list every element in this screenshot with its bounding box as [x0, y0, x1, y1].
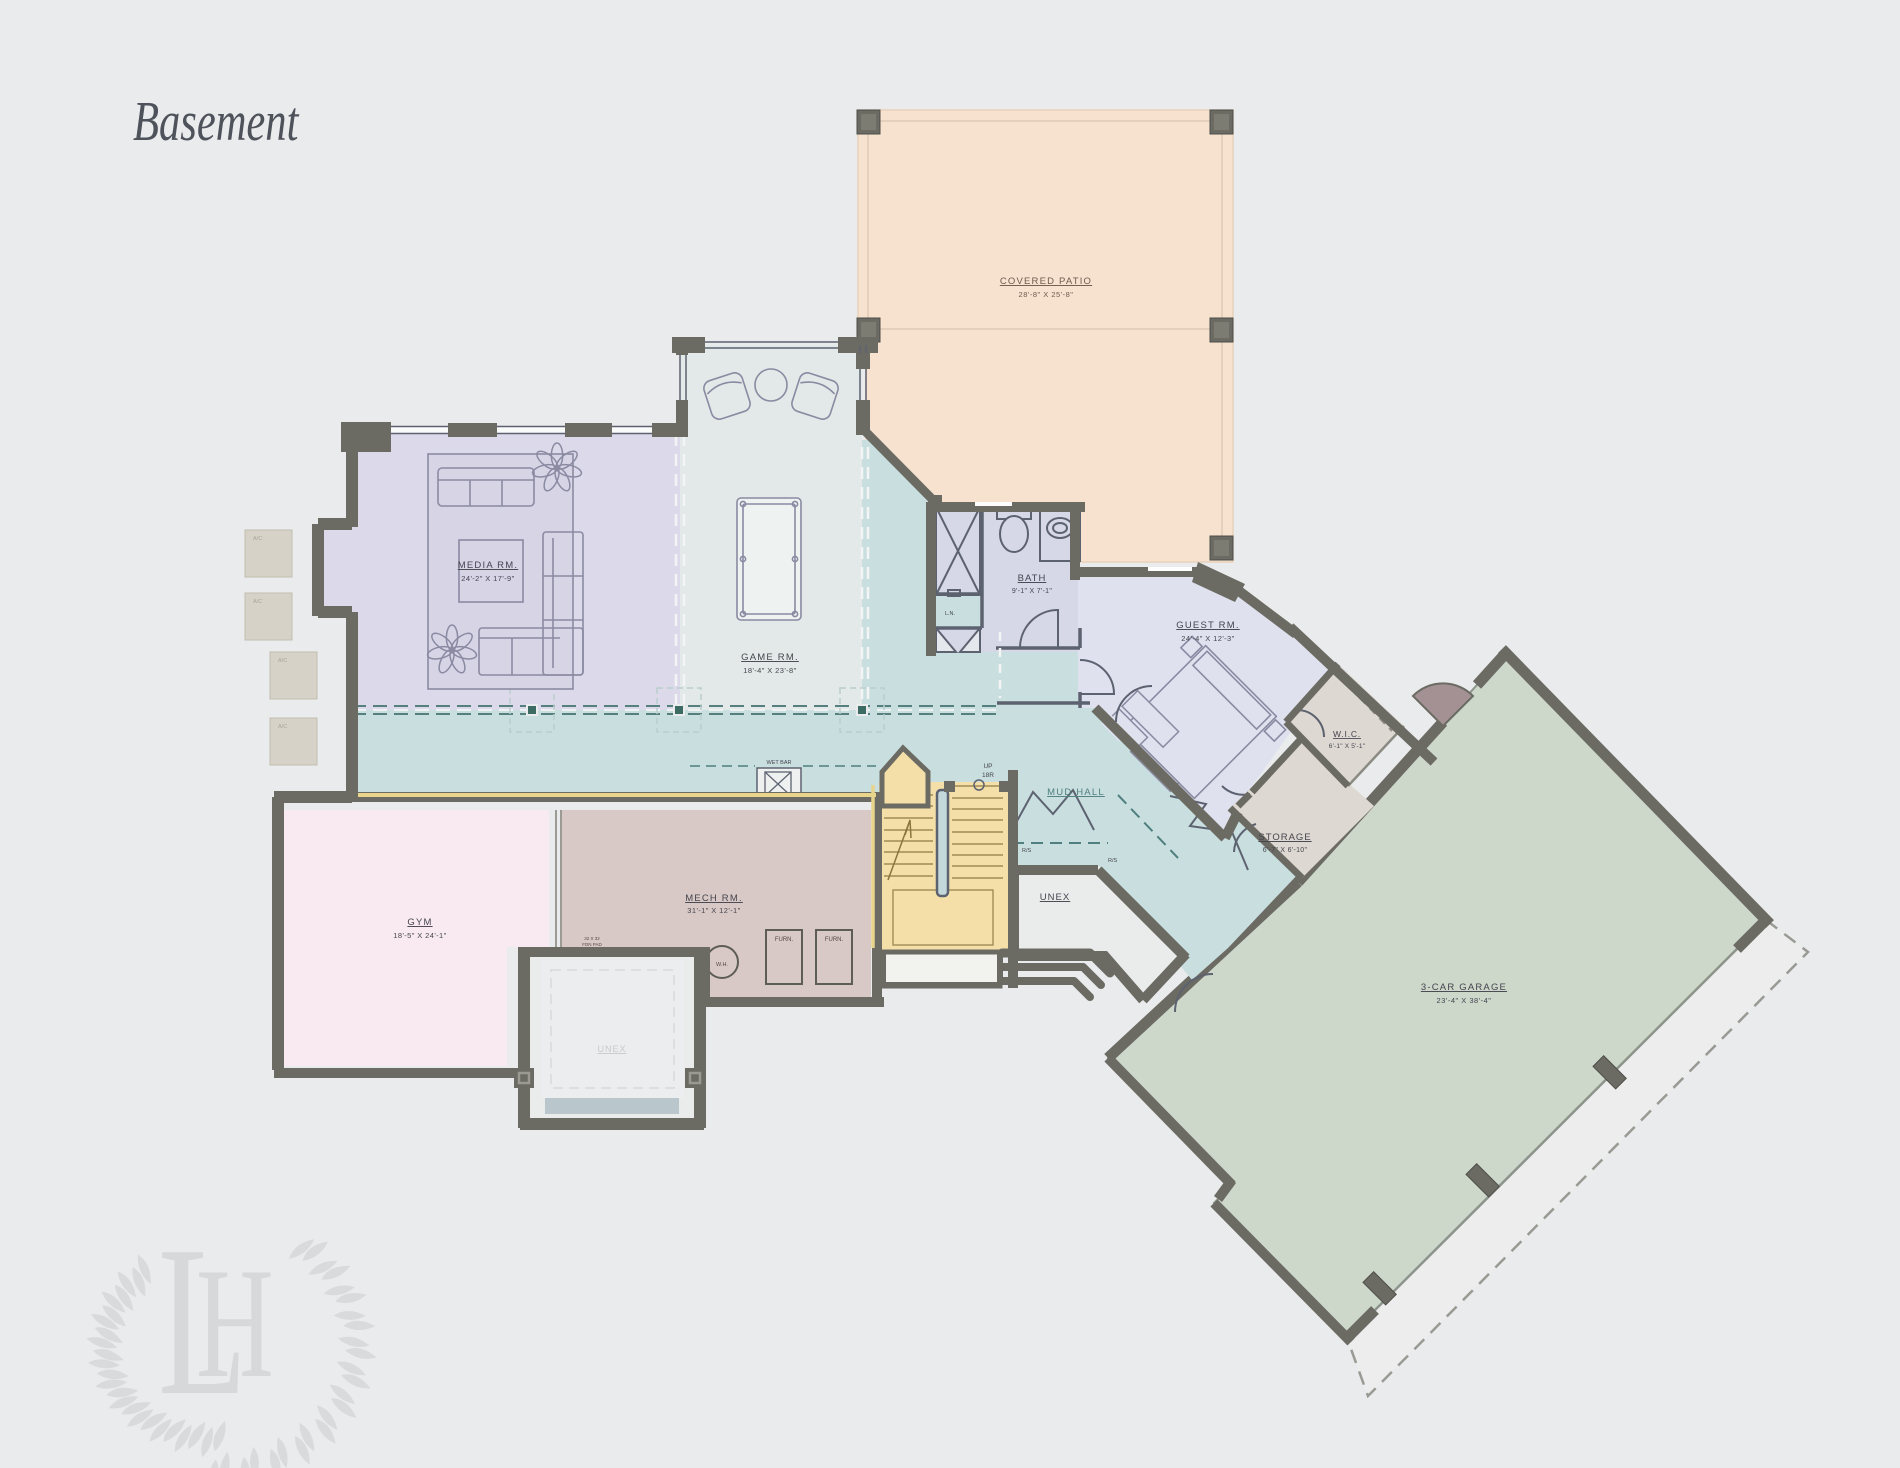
svg-text:18'-4" X 23'-8": 18'-4" X 23'-8" — [743, 666, 796, 675]
svg-text:Basement: Basement — [133, 90, 299, 152]
svg-text:28'-8" X 25'-8": 28'-8" X 25'-8" — [1019, 290, 1074, 299]
svg-text:R/S: R/S — [1108, 858, 1118, 864]
svg-text:WET BAR: WET BAR — [767, 760, 792, 766]
svg-text:W.H.: W.H. — [716, 962, 728, 968]
svg-text:24'-4" X 12'-3": 24'-4" X 12'-3" — [1181, 634, 1234, 643]
svg-text:3-CAR GARAGE: 3-CAR GARAGE — [1421, 982, 1507, 993]
svg-text:W.I.C.: W.I.C. — [1333, 729, 1361, 739]
svg-text:FDN PAD: FDN PAD — [582, 942, 602, 947]
svg-text:6'-7" X 6'-10": 6'-7" X 6'-10" — [1263, 847, 1308, 854]
svg-text:UNEX: UNEX — [1040, 892, 1070, 903]
svg-text:A/C: A/C — [253, 536, 262, 542]
svg-text:FURN.: FURN. — [825, 937, 844, 943]
svg-text:GYM: GYM — [407, 917, 432, 928]
svg-text:24'-2" X 17'-9": 24'-2" X 17'-9" — [461, 574, 514, 583]
svg-text:A/C: A/C — [278, 658, 287, 664]
svg-text:GUEST RM.: GUEST RM. — [1176, 620, 1239, 631]
svg-text:GAME RM.: GAME RM. — [741, 652, 799, 663]
svg-text:L.N.: L.N. — [945, 611, 956, 617]
svg-text:MUD HALL: MUD HALL — [1047, 787, 1105, 798]
svg-text:COVERED PATIO: COVERED PATIO — [1000, 276, 1092, 287]
svg-text:A/C: A/C — [278, 724, 287, 730]
svg-text:BATH: BATH — [1018, 573, 1047, 584]
svg-text:23'-4" X 38'-4": 23'-4" X 38'-4" — [1437, 996, 1492, 1005]
svg-text:6'-1" X 5'-1": 6'-1" X 5'-1" — [1329, 743, 1366, 750]
svg-text:H: H — [196, 1237, 274, 1411]
svg-text:31'-1" X 12'-1": 31'-1" X 12'-1" — [687, 906, 740, 915]
svg-text:A/C: A/C — [253, 599, 262, 605]
svg-text:18R: 18R — [982, 772, 994, 779]
svg-text:18'-5" X 24'-1": 18'-5" X 24'-1" — [393, 931, 446, 940]
svg-text:UP: UP — [983, 763, 992, 770]
svg-text:STORAGE: STORAGE — [1258, 832, 1311, 843]
svg-text:FURN.: FURN. — [775, 937, 794, 943]
svg-text:UNEX: UNEX — [597, 1044, 626, 1054]
svg-text:MEDIA RM.: MEDIA RM. — [458, 560, 518, 571]
svg-text:9'-1" X 7'-1": 9'-1" X 7'-1" — [1012, 588, 1053, 595]
svg-text:R/S: R/S — [1022, 848, 1032, 854]
svg-text:MECH RM.: MECH RM. — [685, 893, 743, 904]
svg-text:32 X 32: 32 X 32 — [584, 936, 600, 941]
